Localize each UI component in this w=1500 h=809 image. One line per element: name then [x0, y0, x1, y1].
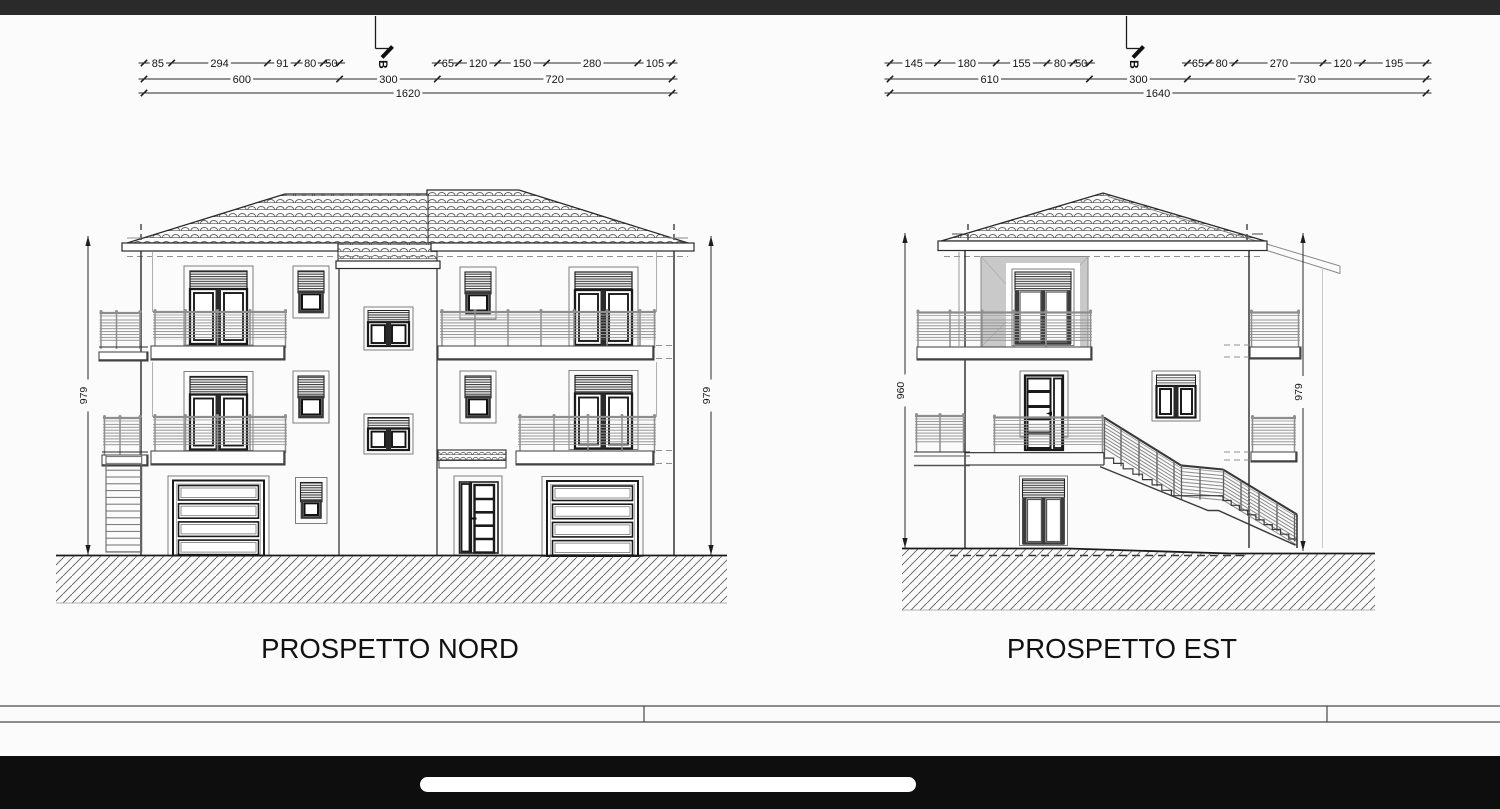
svg-text:PROSPETTO EST: PROSPETTO EST [1007, 633, 1237, 664]
svg-text:50: 50 [1075, 58, 1087, 70]
svg-text:B: B [1127, 60, 1141, 69]
svg-text:80: 80 [1216, 58, 1228, 70]
svg-text:294: 294 [210, 58, 228, 70]
svg-text:B: B [376, 60, 390, 69]
svg-text:600: 600 [233, 74, 251, 86]
svg-text:300: 300 [1129, 74, 1147, 86]
svg-text:1640: 1640 [1146, 88, 1170, 100]
svg-text:120: 120 [1334, 58, 1352, 70]
svg-text:150: 150 [513, 58, 531, 70]
svg-text:979: 979 [78, 387, 90, 405]
svg-text:979: 979 [701, 387, 713, 405]
svg-text:155: 155 [1012, 58, 1030, 70]
svg-text:85: 85 [152, 58, 164, 70]
svg-text:730: 730 [1298, 74, 1316, 86]
svg-text:65: 65 [1192, 58, 1204, 70]
svg-text:180: 180 [958, 58, 976, 70]
svg-text:720: 720 [546, 74, 564, 86]
svg-text:280: 280 [583, 58, 601, 70]
svg-text:979: 979 [1293, 383, 1305, 401]
svg-text:50: 50 [325, 58, 337, 70]
svg-text:1620: 1620 [396, 88, 420, 100]
svg-text:145: 145 [905, 58, 923, 70]
svg-text:610: 610 [981, 74, 999, 86]
svg-text:91: 91 [276, 58, 288, 70]
svg-text:270: 270 [1270, 58, 1288, 70]
svg-text:120: 120 [469, 58, 487, 70]
svg-text:80: 80 [1054, 58, 1066, 70]
svg-text:300: 300 [379, 74, 397, 86]
svg-text:960: 960 [895, 382, 907, 400]
svg-text:65: 65 [442, 58, 454, 70]
svg-text:PROSPETTO NORD: PROSPETTO NORD [261, 633, 519, 664]
svg-text:195: 195 [1385, 58, 1403, 70]
svg-text:80: 80 [304, 58, 316, 70]
svg-text:105: 105 [646, 58, 664, 70]
